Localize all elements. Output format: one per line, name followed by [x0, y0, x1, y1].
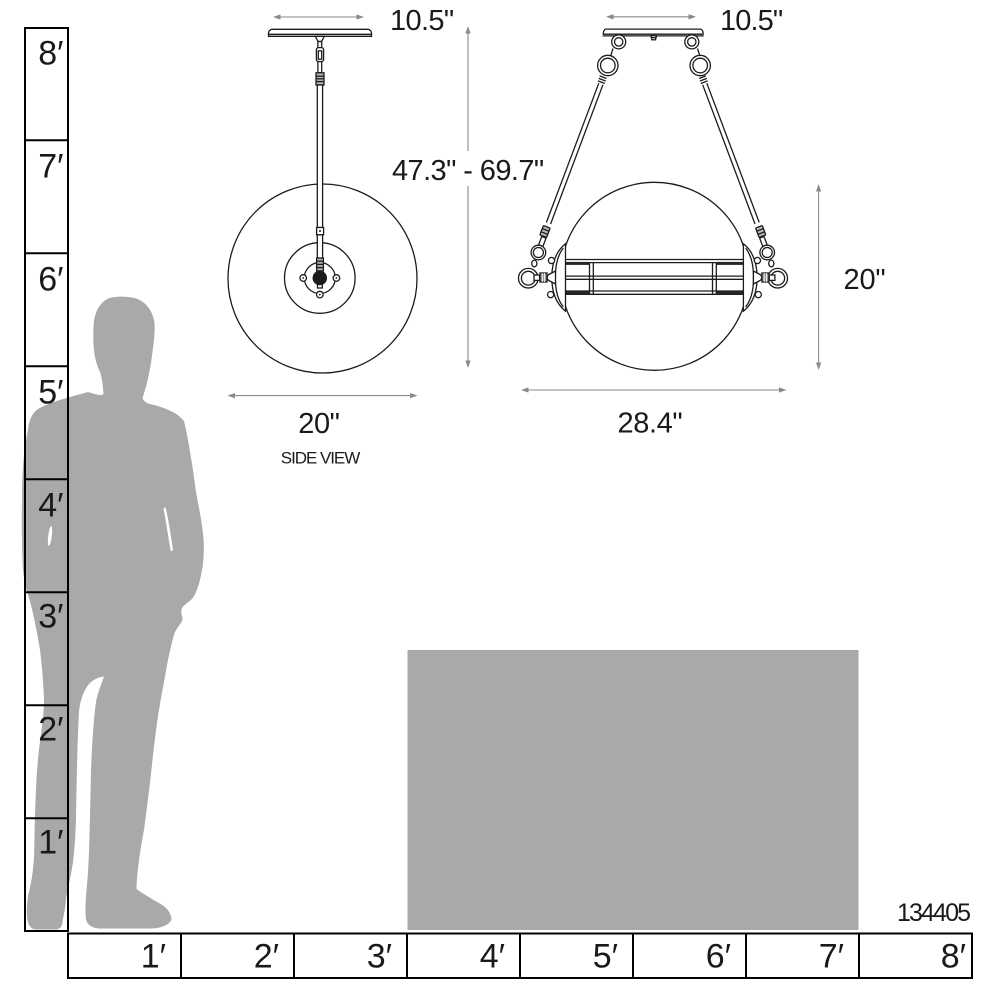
- svg-text:1′: 1′: [141, 938, 166, 976]
- svg-text:7′: 7′: [38, 148, 63, 186]
- svg-text:4′: 4′: [480, 938, 505, 976]
- svg-text:7′: 7′: [819, 938, 844, 976]
- svg-text:47.3" - 69.7": 47.3" - 69.7": [392, 155, 544, 187]
- svg-text:8′: 8′: [38, 35, 63, 73]
- svg-text:6′: 6′: [706, 938, 731, 976]
- svg-text:5′: 5′: [593, 938, 618, 976]
- svg-text:1′: 1′: [38, 824, 63, 862]
- svg-text:2′: 2′: [254, 938, 279, 976]
- svg-text:20": 20": [298, 408, 340, 440]
- svg-text:28.4": 28.4": [618, 408, 683, 440]
- svg-text:8′: 8′: [941, 938, 966, 976]
- svg-text:134405: 134405: [897, 899, 971, 927]
- svg-text:10.5": 10.5": [390, 5, 454, 37]
- svg-text:20": 20": [844, 264, 886, 296]
- svg-text:5′: 5′: [38, 374, 63, 412]
- svg-text:2′: 2′: [38, 711, 63, 749]
- svg-text:10.5": 10.5": [720, 5, 783, 37]
- svg-text:6′: 6′: [38, 261, 63, 299]
- svg-text:3′: 3′: [367, 938, 392, 976]
- svg-text:SIDE VIEW: SIDE VIEW: [281, 449, 360, 468]
- svg-text:4′: 4′: [38, 487, 63, 525]
- svg-text:3′: 3′: [38, 598, 63, 636]
